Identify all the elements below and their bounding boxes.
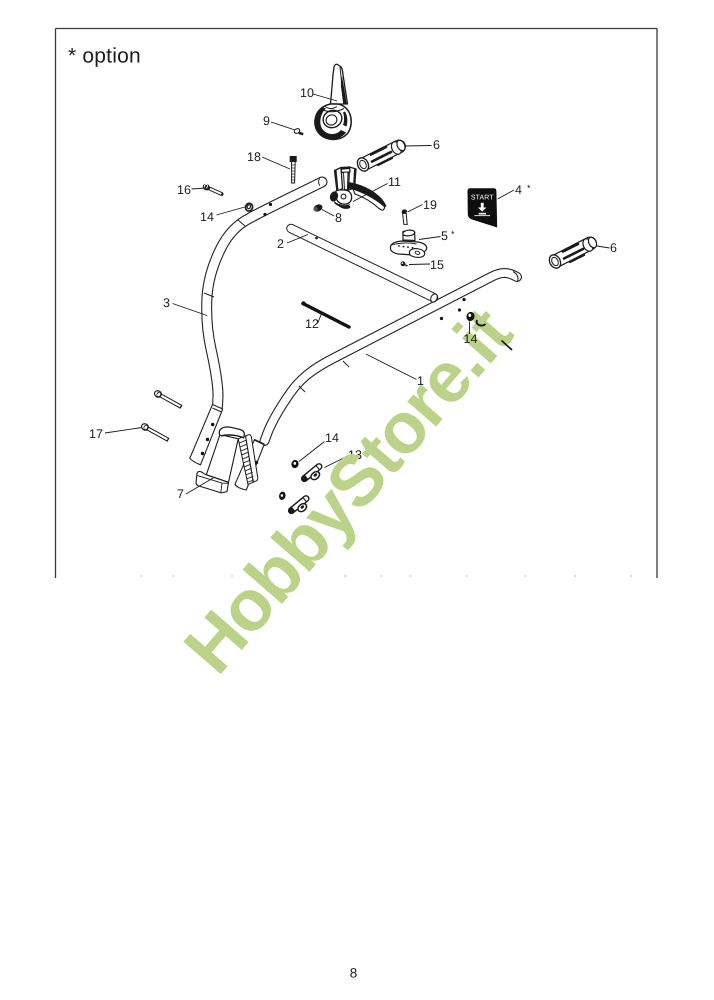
svg-text:5: 5 xyxy=(441,229,448,243)
svg-text:8: 8 xyxy=(335,211,342,225)
svg-text:14: 14 xyxy=(464,332,478,346)
svg-text:7: 7 xyxy=(177,487,184,501)
svg-text:16: 16 xyxy=(177,183,191,197)
svg-text:START: START xyxy=(471,195,495,202)
svg-text:11: 11 xyxy=(388,175,401,189)
svg-text:6: 6 xyxy=(433,138,440,152)
svg-text:18: 18 xyxy=(247,150,261,164)
svg-text:12: 12 xyxy=(305,317,319,331)
svg-text:14: 14 xyxy=(200,210,214,224)
svg-text:15: 15 xyxy=(430,258,444,272)
svg-text:* option: * option xyxy=(68,45,141,68)
svg-text:19: 19 xyxy=(423,198,437,212)
svg-text:8: 8 xyxy=(350,966,358,981)
svg-text:*: * xyxy=(451,229,455,239)
svg-text:6: 6 xyxy=(610,241,617,255)
svg-text:*: * xyxy=(527,183,531,193)
svg-text:2: 2 xyxy=(277,237,284,251)
svg-text:9: 9 xyxy=(263,114,270,128)
svg-text:3: 3 xyxy=(163,296,170,310)
svg-text:4: 4 xyxy=(515,183,522,197)
svg-text:17: 17 xyxy=(89,427,103,441)
svg-text:10: 10 xyxy=(300,86,314,100)
